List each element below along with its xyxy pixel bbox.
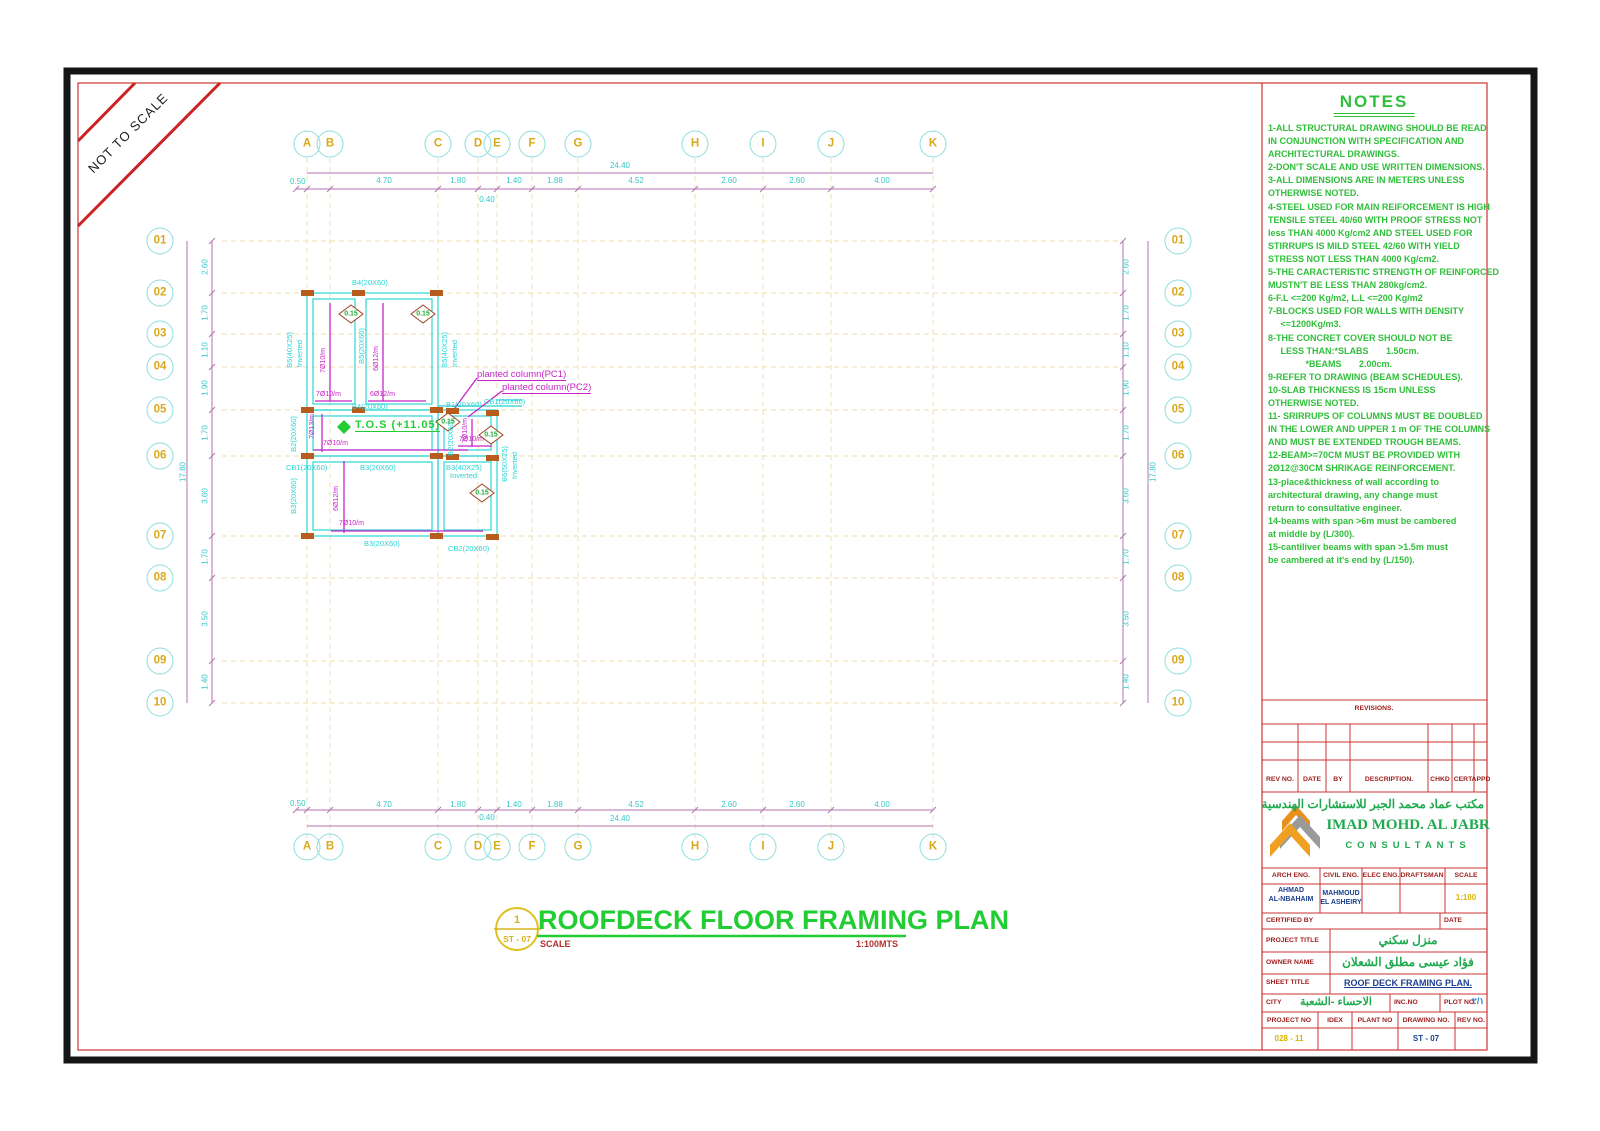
note-line: 2Ø12@30CM SHRIKAGE REINFORCEMENT. bbox=[1268, 462, 1484, 475]
titleblock-bottom-header: PROJECT NO bbox=[1267, 1017, 1311, 1024]
grid-bubble: 03 bbox=[1165, 321, 1192, 348]
grid-bubble: 05 bbox=[1165, 397, 1192, 424]
dim-label: 1.40 bbox=[506, 176, 522, 185]
owner-name-label: OWNER NAME bbox=[1266, 959, 1314, 966]
grid-bubble: 10 bbox=[1165, 690, 1192, 717]
project-title-value: منزل سكني bbox=[1378, 933, 1437, 947]
revisions-header: APPD bbox=[1472, 776, 1491, 783]
slab-thickness-diamond-value: 0.15 bbox=[344, 311, 358, 318]
beam-label: B3(20X60) bbox=[289, 478, 298, 514]
grid-bubble: 01 bbox=[147, 228, 174, 255]
city-value: الاحساء -الشعبة bbox=[1300, 995, 1372, 1008]
dim-label: 2.60 bbox=[1122, 259, 1131, 275]
note-line: be cambered at it's end by (L/150). bbox=[1268, 554, 1484, 567]
project-title-label: PROJECT TITLE bbox=[1266, 937, 1319, 944]
detail-sheet-ref: ST - 07 bbox=[503, 934, 531, 944]
dim-label: 1.80 bbox=[450, 176, 466, 185]
revisions-title: REVISIONS. bbox=[1355, 705, 1394, 712]
beam-label: B5(20X60) bbox=[357, 328, 366, 364]
note-line: ARCHITECTURAL DRAWINGS. bbox=[1268, 148, 1484, 161]
grid-bubble: F bbox=[519, 834, 546, 861]
note-line: 7-BLOCKS USED FOR WALLS WITH DENSITY bbox=[1268, 305, 1484, 318]
sheet-title-value: ROOF DECK FRAMING PLAN. bbox=[1344, 978, 1472, 988]
staff-header: ARCH ENG. bbox=[1272, 872, 1310, 879]
dim-label: 3.60 bbox=[201, 488, 210, 504]
grid-bubble: K bbox=[920, 834, 947, 861]
beam-label: Inverted bbox=[295, 340, 304, 367]
grid-bubble: H bbox=[682, 131, 709, 158]
beam-label: B6(50X25) bbox=[500, 446, 509, 482]
titleblock-bottom-header: DRAWING NO. bbox=[1403, 1017, 1450, 1024]
dim-label: 1.10 bbox=[1122, 342, 1131, 358]
note-line: 9-REFER TO DRAWING (BEAM SCHEDULES). bbox=[1268, 371, 1484, 384]
dim-total-bottom: 24.40 bbox=[610, 814, 630, 823]
note-line: <=1200Kg/m3. bbox=[1268, 318, 1484, 331]
drawing-no-value: ST - 07 bbox=[1413, 1034, 1439, 1043]
grid-bubble: 08 bbox=[147, 565, 174, 592]
dim-label: 1.40 bbox=[506, 800, 522, 809]
grid-bubble: 08 bbox=[1165, 565, 1192, 592]
revisions-header: BY bbox=[1333, 776, 1342, 783]
dim-total-right: 17.80 bbox=[1149, 462, 1158, 482]
revisions-header: CERT bbox=[1454, 776, 1473, 783]
beam-label: Inverted bbox=[450, 340, 459, 367]
dim-label: 4.70 bbox=[376, 176, 392, 185]
dim-label: 4.70 bbox=[376, 800, 392, 809]
note-line: IN THE LOWER AND UPPER 1 m OF THE COLUMN… bbox=[1268, 423, 1484, 436]
dim-label: 1.90 bbox=[201, 380, 210, 396]
dim-label: 2.60 bbox=[201, 259, 210, 275]
grid-bubble: 04 bbox=[147, 354, 174, 381]
grid-bubble: 06 bbox=[147, 443, 174, 470]
note-line: 1-ALL STRUCTURAL DRAWING SHOULD BE READ bbox=[1268, 122, 1484, 135]
city-label: CITY bbox=[1266, 999, 1281, 1006]
beam-label: B3(20X60) bbox=[364, 539, 400, 548]
note-line: STRESS NOT LESS THAN 4000 Kg/cm2. bbox=[1268, 253, 1484, 266]
grid-bubble: 06 bbox=[1165, 443, 1192, 470]
beam-label: B4(20X60) bbox=[352, 278, 388, 287]
note-line: OTHERWISE NOTED. bbox=[1268, 397, 1484, 410]
grid-bubble: I bbox=[750, 131, 777, 158]
notes-list: 1-ALL STRUCTURAL DRAWING SHOULD BE READI… bbox=[1268, 122, 1484, 567]
dim-label: 1.88 bbox=[547, 176, 563, 185]
dim-label: 4.52 bbox=[628, 176, 644, 185]
note-line: *BEAMS 2.00cm. bbox=[1268, 358, 1484, 371]
rebar-label: 6Ø12/m bbox=[333, 486, 340, 511]
dim-label: 1.88 bbox=[547, 800, 563, 809]
grid-bubble: G bbox=[565, 131, 592, 158]
dim-label: 1.40 bbox=[1122, 674, 1131, 690]
note-line: 10-SLAB THICKNESS IS 15cm UNLESS bbox=[1268, 384, 1484, 397]
dim-label: 3.50 bbox=[1122, 611, 1131, 627]
date-label: DATE bbox=[1444, 917, 1462, 924]
grid-bubble: C bbox=[425, 131, 452, 158]
beam-label: B3(20X60) bbox=[360, 463, 396, 472]
note-line: 13-place&thickness of wall according to bbox=[1268, 476, 1484, 489]
dim-first-bottom: 0.50 bbox=[290, 799, 306, 808]
note-line: 2-DON'T SCALE AND USE WRITTEN DIMENSIONS… bbox=[1268, 161, 1484, 174]
note-line: MUSTN'T BE LESS THAN 280kg/cm2. bbox=[1268, 279, 1484, 292]
rebar-label: 7Ø10/m bbox=[459, 436, 484, 443]
rebar-label: 7Ø10/m bbox=[316, 391, 341, 398]
grid-bubble: 07 bbox=[147, 523, 174, 550]
rebar-label: 7Ø13/m bbox=[309, 414, 316, 439]
grid-bubble: G bbox=[565, 834, 592, 861]
slab-thickness-diamond-value: 0.15 bbox=[484, 432, 498, 439]
dim-total-left: 17.80 bbox=[179, 462, 188, 482]
incno-label: INC.NO bbox=[1394, 999, 1418, 1006]
grid-bubble: E bbox=[484, 131, 511, 158]
dim-label: 1.10 bbox=[201, 342, 210, 358]
note-line: architectural drawing, any change must bbox=[1268, 489, 1484, 502]
note-line: 14-beams with span >6m must be cambered bbox=[1268, 515, 1484, 528]
beam-label: B4(20X60) bbox=[352, 402, 388, 411]
certified-by-label: CERTIFIED BY bbox=[1266, 917, 1313, 924]
dim-label: 2.60 bbox=[721, 176, 737, 185]
note-line: LESS THAN:*SLABS 1.50cm. bbox=[1268, 345, 1484, 358]
beam-label: Inverted bbox=[450, 471, 477, 480]
revisions-header: REV NO. bbox=[1266, 776, 1294, 783]
plot-no-value: ٢/١ bbox=[1472, 996, 1484, 1007]
note-line: 5-THE CARACTERISTIC STRENGTH OF REINFORC… bbox=[1268, 266, 1484, 279]
titleblock-bottom-header: IDEX bbox=[1327, 1017, 1343, 1024]
rebar-label: 7Ø10/m bbox=[323, 440, 348, 447]
grid-bubble: 09 bbox=[147, 648, 174, 675]
beam-label: CB1(20X60) bbox=[286, 463, 327, 472]
beam-label: B2(20X60) bbox=[289, 416, 298, 452]
grid-bubble: J bbox=[818, 834, 845, 861]
grid-bubble: E bbox=[484, 834, 511, 861]
grid-bubble: 02 bbox=[1165, 280, 1192, 307]
titleblock-bottom-header: PLANT NO bbox=[1358, 1017, 1393, 1024]
grid-bubble: H bbox=[682, 834, 709, 861]
arch-eng-name2: AL-NBAHAIM bbox=[1269, 896, 1314, 903]
dim-label: 1.90 bbox=[1122, 380, 1131, 396]
dim-label: 1.40 bbox=[201, 674, 210, 690]
grid-bubble: 04 bbox=[1165, 354, 1192, 381]
dim-label: 1.70 bbox=[1122, 549, 1131, 565]
grid-bubble: F bbox=[519, 131, 546, 158]
grid-bubble: C bbox=[425, 834, 452, 861]
dim-label: 2.60 bbox=[721, 800, 737, 809]
rebar-label: 6Ø12/m bbox=[373, 346, 380, 371]
note-line: TENSILE STEEL 40/60 WITH PROOF STRESS NO… bbox=[1268, 214, 1484, 227]
revisions-header: DESCRIPTION. bbox=[1365, 776, 1413, 783]
note-line: 3-ALL DIMENSIONS ARE IN METERS UNLESS bbox=[1268, 174, 1484, 187]
staff-header: ELEC ENG. bbox=[1363, 872, 1400, 879]
grid-bubble: 10 bbox=[147, 690, 174, 717]
note-line: 11- SRIRRUPS OF COLUMNS MUST BE DOUBLED bbox=[1268, 410, 1484, 423]
note-line: IN CONJUNCTION WITH SPECIFICATION AND bbox=[1268, 135, 1484, 148]
civil-eng-name2: EL ASHEIRY bbox=[1320, 899, 1361, 906]
rebar-label: 6Ø12/m bbox=[370, 391, 395, 398]
planted-column-callout: planted column(PC2) bbox=[502, 382, 591, 394]
dim-label: 1.70 bbox=[201, 425, 210, 441]
slab-thickness-diamond-value: 0.15 bbox=[475, 490, 489, 497]
detail-number: 1 bbox=[514, 914, 520, 926]
slab-thickness-diamond-value: 0.15 bbox=[441, 419, 455, 426]
dim-sub-top: 0.40 bbox=[479, 195, 495, 204]
company-name-arabic: مكتب عماد محمد الجبر للاستشارات الهندسية bbox=[1262, 797, 1484, 811]
rebar-label: 7Ø10/m bbox=[320, 348, 327, 373]
titleblock-bottom-header: REV NO. bbox=[1457, 1017, 1485, 1024]
beam-label: B5(40X25) bbox=[285, 332, 294, 368]
note-line: 8-THE CONCRET COVER SHOULD NOT BE bbox=[1268, 332, 1484, 345]
dim-label: 4.00 bbox=[874, 176, 890, 185]
grid-bubble: 09 bbox=[1165, 648, 1192, 675]
dim-sub-bottom: 0.40 bbox=[479, 813, 495, 822]
dim-label: 1.70 bbox=[1122, 425, 1131, 441]
dim-label: 4.52 bbox=[628, 800, 644, 809]
note-line: 12-BEAM>=70CM MUST BE PROVIDED WITH bbox=[1268, 449, 1484, 462]
company-name: IMAD MOHD. AL JABR bbox=[1326, 817, 1489, 834]
owner-name-value: فؤاد عيسى مطلق الشعلان bbox=[1342, 955, 1474, 969]
dim-label: 3.60 bbox=[1122, 488, 1131, 504]
grid-bubble: B bbox=[317, 834, 344, 861]
beam-label: CB1(20X60) bbox=[484, 397, 525, 406]
arch-eng-name: AHMAD bbox=[1278, 887, 1304, 894]
notes-title: NOTES bbox=[1334, 92, 1415, 117]
company-subtitle: CONSULTANTS bbox=[1345, 840, 1470, 851]
drawing-title: ROOFDECK FLOOR FRAMING PLAN bbox=[538, 905, 1009, 936]
staff-header: DRAFTSMAN bbox=[1400, 872, 1443, 879]
sheet-title-label: SHEET TITLE bbox=[1266, 979, 1309, 986]
rebar-label: 7Ø10/m bbox=[339, 520, 364, 527]
note-line: AND MUST BE EXTENDED TROUGH BEAMS. bbox=[1268, 436, 1484, 449]
grid-bubble: 03 bbox=[147, 321, 174, 348]
grid-bubble: 01 bbox=[1165, 228, 1192, 255]
note-line: return to consultative engineer. bbox=[1268, 502, 1484, 515]
scale-label: SCALE bbox=[540, 939, 571, 949]
slab-thickness-diamond-value: 0.15 bbox=[416, 311, 430, 318]
scale-value: 1:100MTS bbox=[856, 939, 898, 949]
note-line: at middle by (L/300). bbox=[1268, 528, 1484, 541]
dim-label: 1.70 bbox=[201, 549, 210, 565]
dim-label: 1.80 bbox=[450, 800, 466, 809]
scale-cell-value: 1:100 bbox=[1456, 893, 1476, 902]
note-line: 6-F.L <=200 Kg/m2, L.L <=200 Kg/m2 bbox=[1268, 292, 1484, 305]
staff-header: SCALE bbox=[1454, 872, 1477, 879]
grid-bubble: I bbox=[750, 834, 777, 861]
staff-header: CIVIL ENG. bbox=[1323, 872, 1359, 879]
project-no-value: 028 - 11 bbox=[1275, 1034, 1304, 1043]
dim-label: 2.60 bbox=[789, 800, 805, 809]
beam-label: B5(40X25) bbox=[440, 332, 449, 368]
grid-bubble: J bbox=[818, 131, 845, 158]
beam-label: B1(20X60) bbox=[446, 400, 482, 409]
grid-bubble: 02 bbox=[147, 280, 174, 307]
dim-first-top: 0.50 bbox=[290, 177, 306, 186]
dim-label: 4.00 bbox=[874, 800, 890, 809]
note-line: 4-STEEL USED FOR MAIN REIFORCEMENT IS HI… bbox=[1268, 201, 1484, 214]
note-line: STIRRUPS IS MILD STEEL 42/60 WITH YIELD bbox=[1268, 240, 1484, 253]
drawing-sheet: NOT TO SCALE ABCDEFGHIJK ABCDEFGHIJK 010… bbox=[0, 0, 1600, 1131]
dim-label: 1.70 bbox=[201, 305, 210, 321]
note-line: OTHERWISE NOTED. bbox=[1268, 187, 1484, 200]
dim-label: 1.70 bbox=[1122, 305, 1131, 321]
note-line: less THAN 4000 Kg/cm2 AND STEEL USED FOR bbox=[1268, 227, 1484, 240]
note-line: 15-cantiliver beams with span >1.5m must bbox=[1268, 541, 1484, 554]
dim-label: 2.60 bbox=[789, 176, 805, 185]
beam-label: Inverted bbox=[510, 452, 519, 479]
beam-label: CB2(20X60) bbox=[448, 544, 489, 553]
revisions-header: DATE bbox=[1303, 776, 1321, 783]
dim-total-top: 24.40 bbox=[610, 161, 630, 170]
grid-bubble: 07 bbox=[1165, 523, 1192, 550]
civil-eng-name: MAHMOUD bbox=[1322, 890, 1359, 897]
dim-label: 3.50 bbox=[201, 611, 210, 627]
planted-column-callout: planted column(PC1) bbox=[477, 369, 566, 381]
grid-bubble: B bbox=[317, 131, 344, 158]
grid-bubble: 05 bbox=[147, 397, 174, 424]
revisions-header: CHKD bbox=[1430, 776, 1450, 783]
top-of-slab-level: T.O.S (+11.05) bbox=[355, 419, 440, 432]
grid-bubble: K bbox=[920, 131, 947, 158]
